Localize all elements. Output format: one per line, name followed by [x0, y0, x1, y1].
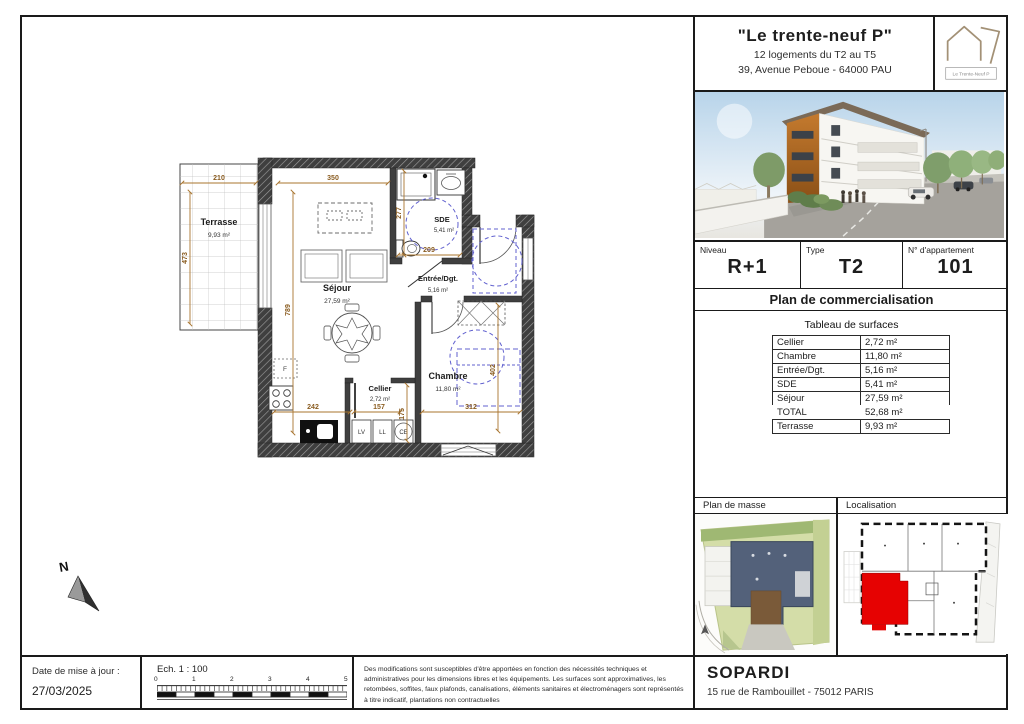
svg-text:175: 175: [399, 408, 406, 420]
surfaces-table: Cellier2,72 m² Chambre11,80 m² Entrée/Dg…: [772, 335, 950, 434]
building-photo: [695, 90, 1008, 240]
apartment-cell: N° d'appartement 101: [903, 240, 1008, 288]
sejour-area: 27,59 m²: [324, 298, 350, 305]
site-plan: [695, 514, 836, 654]
svg-text:312: 312: [465, 404, 477, 411]
building-render: [695, 92, 1004, 238]
date-value: 27/03/2025: [32, 684, 140, 698]
surface-row: Séjour27,59 m²: [772, 391, 950, 406]
date-block: Date de mise à jour : 27/03/2025: [20, 655, 140, 710]
kitchen-units: F LV LL CE: [269, 359, 413, 443]
location-plan: [838, 514, 1008, 654]
scale-block: Ech. 1 : 100 0 1 2 3 4 5: [140, 655, 352, 710]
surfaces-section: Tableau de surfaces Cellier2,72 m² Chamb…: [695, 310, 1008, 497]
surfaces-title: Tableau de surfaces: [695, 319, 1008, 331]
washer-label: LL: [379, 430, 386, 436]
scale-tick: 4: [306, 676, 310, 683]
scale-bar-icon: [157, 685, 347, 703]
surface-row-total: TOTAL52,68 m²: [772, 405, 950, 420]
terrasse-area: 9,93 m²: [208, 232, 231, 239]
project-title: "Le trente-neuf P": [697, 26, 933, 46]
scale-tick: 1: [192, 676, 196, 683]
svg-text:210: 210: [213, 175, 225, 182]
surface-row: Chambre11,80 m²: [772, 349, 950, 364]
localisation-label: Localisation: [838, 497, 1008, 513]
sde-fixtures: [396, 169, 465, 257]
scale-label: Ech. 1 : 100: [157, 664, 208, 675]
scale-tick: 0: [154, 676, 158, 683]
surface-row: Entrée/Dgt.5,16 m²: [772, 363, 950, 378]
terrasse-label: Terrasse: [201, 217, 238, 227]
scale-tick: 5: [344, 676, 348, 683]
svg-text:350: 350: [327, 175, 339, 182]
surface-row: Cellier2,72 m²: [772, 335, 950, 350]
scale-tick: 2: [230, 676, 234, 683]
type-label: Type: [801, 242, 902, 255]
company-name: SOPARDI: [707, 663, 1008, 683]
date-label: Date de mise à jour :: [32, 666, 140, 677]
localisation-map: [838, 513, 1008, 655]
sde-label: SDE: [434, 215, 449, 224]
sde-area: 5,41 m²: [434, 228, 454, 234]
cellier-area: 2,72 m²: [370, 397, 390, 403]
plan-sheet: F LV LL CE: [0, 0, 1024, 724]
house-logo-icon: Le Trente-Neuf P: [935, 15, 1008, 88]
svg-text:789: 789: [285, 304, 292, 316]
sejour-label: Séjour: [323, 283, 352, 293]
type-cell: Type T2: [800, 240, 903, 288]
svg-text:209: 209: [423, 247, 435, 254]
compass-n: N: [58, 559, 70, 575]
surface-row: SDE5,41 m²: [772, 377, 950, 392]
svg-text:473: 473: [182, 252, 189, 264]
plan-title: Plan de commercialisation: [695, 288, 1008, 310]
svg-text:157: 157: [373, 404, 385, 411]
dishwasher-label: LV: [358, 430, 365, 436]
plan-de-masse-label: Plan de masse: [695, 497, 836, 513]
disclaimer-block: Des modifications sont susceptibles d'êt…: [352, 655, 695, 710]
logo-caption: Le Trente-Neuf P: [953, 71, 990, 77]
svg-text:402: 402: [490, 364, 497, 376]
chambre-label: Chambre: [428, 371, 467, 381]
niveau-cell: Niveau R+1: [695, 240, 800, 288]
niveau-label: Niveau: [695, 242, 800, 255]
svg-text:242: 242: [307, 404, 319, 411]
chambre-area: 11,80 m²: [435, 386, 461, 393]
project-subtitle-1: 12 logements du T2 au T5: [697, 49, 933, 61]
company-block: SOPARDI 15 rue de Rambouillet - 75012 PA…: [695, 655, 1008, 710]
apartment-value: 101: [903, 256, 1008, 279]
surface-row: Terrasse9,93 m²: [772, 419, 950, 434]
fridge-label: F: [283, 366, 287, 373]
scale-tick: 3: [268, 676, 272, 683]
type-value: T2: [801, 256, 902, 279]
plan-de-masse-map: [695, 513, 836, 655]
project-subtitle-2: 39, Avenue Peboue - 64000 PAU: [697, 64, 933, 76]
svg-text:277: 277: [396, 207, 403, 219]
company-address: 15 rue de Rambouillet - 75012 PARIS: [707, 687, 1008, 698]
cellier-label: Cellier: [369, 384, 392, 393]
title-block: "Le trente-neuf P" 12 logements du T2 au…: [697, 15, 933, 90]
north-arrow-icon: N: [58, 559, 99, 611]
apartment-label: N° d'appartement: [903, 242, 1008, 255]
niveau-value: R+1: [695, 256, 800, 279]
floor-plan: F LV LL CE: [20, 15, 695, 655]
disclaimer-text: Des modifications sont susceptibles d'êt…: [364, 665, 685, 706]
logo: Le Trente-Neuf P: [933, 15, 1008, 90]
entree-label: Entrée/Dgt.: [418, 274, 458, 283]
entree-area: 5,16 m²: [428, 288, 448, 294]
water-heater-label: CE: [399, 430, 407, 436]
terrasse-room: [180, 164, 258, 330]
